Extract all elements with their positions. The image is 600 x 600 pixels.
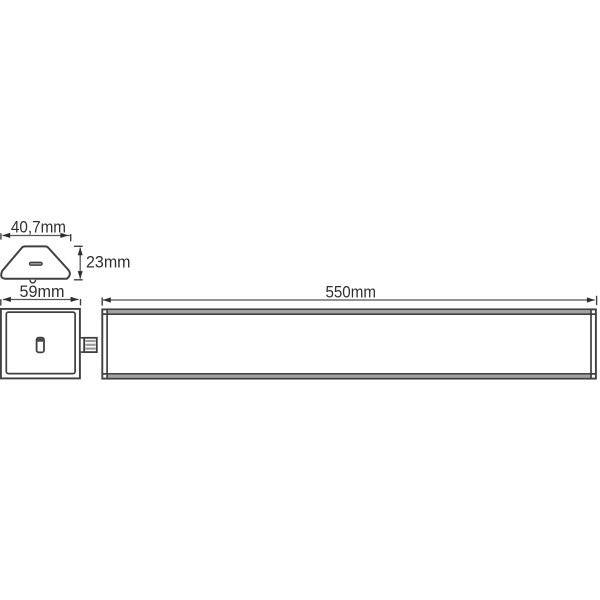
svg-text:40,7mm: 40,7mm (11, 218, 66, 237)
svg-text:550mm: 550mm (325, 282, 376, 301)
svg-text:59mm: 59mm (20, 282, 65, 301)
svg-text:23mm: 23mm (86, 252, 131, 271)
